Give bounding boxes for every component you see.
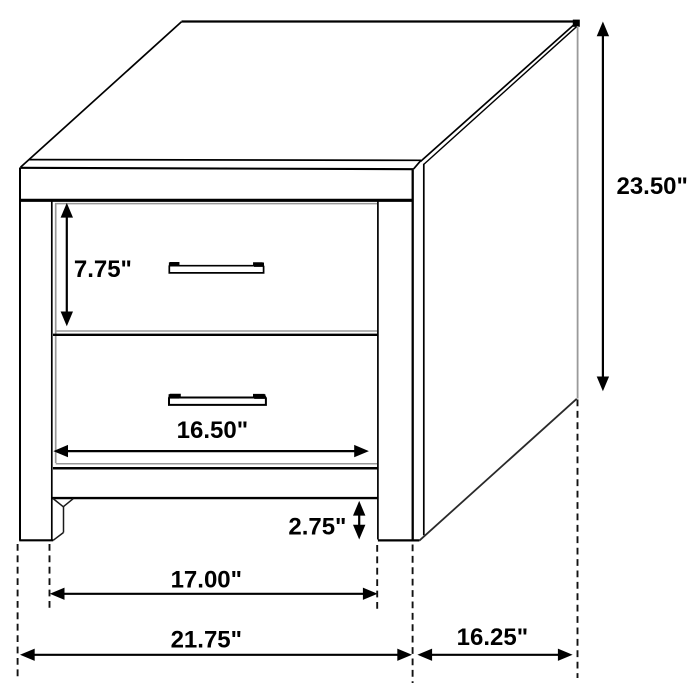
- svg-text:16.50": 16.50": [177, 417, 248, 444]
- svg-text:21.75": 21.75": [171, 626, 242, 653]
- svg-text:7.75": 7.75": [74, 256, 132, 283]
- svg-text:16.25": 16.25": [457, 624, 528, 651]
- svg-text:23.50": 23.50": [616, 173, 687, 200]
- svg-text:2.75": 2.75": [288, 513, 346, 540]
- svg-text:17.00": 17.00": [171, 566, 242, 593]
